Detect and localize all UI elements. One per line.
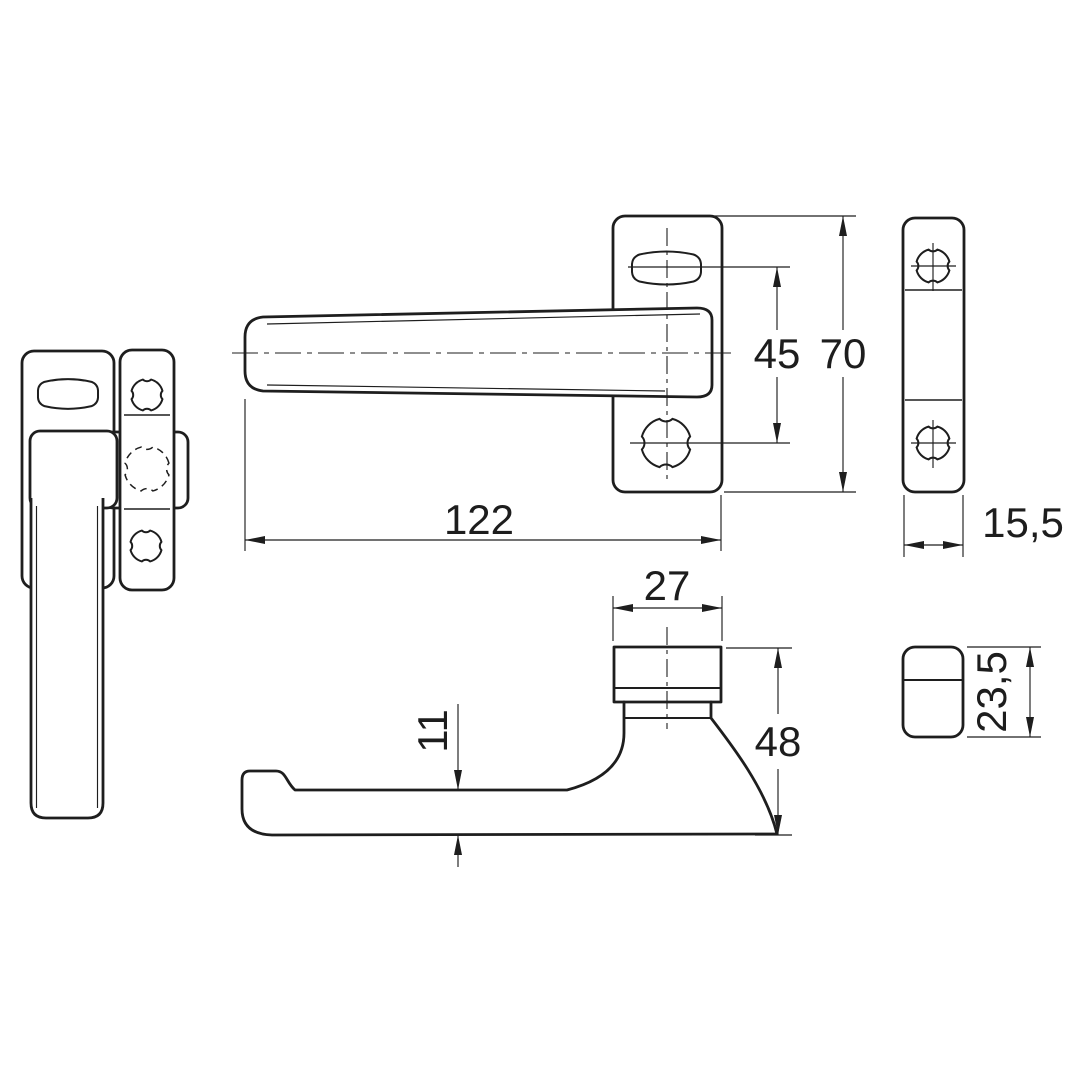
handle-grip-profile bbox=[242, 702, 777, 835]
dimension-label-hub-width: 27 bbox=[644, 562, 691, 609]
hub-top-body bbox=[903, 647, 963, 737]
front-handle-grip bbox=[31, 498, 103, 818]
window-handle-drawing: 122 45 70 15,5 bbox=[0, 0, 1080, 1080]
view-top bbox=[232, 216, 790, 492]
view-front bbox=[22, 350, 188, 818]
dimension-label-hub-depth: 23,5 bbox=[968, 651, 1015, 733]
dimension-label-handle-projection: 48 bbox=[755, 718, 802, 765]
dimension-label-lever-length: 122 bbox=[444, 496, 514, 543]
dimension-label-plate-height: 70 bbox=[820, 330, 867, 377]
dimension-label-plate-width: 15,5 bbox=[982, 499, 1064, 546]
dimension-label-hole-spacing: 45 bbox=[754, 330, 801, 377]
view-handle-side bbox=[242, 627, 777, 835]
front-rosette-plate bbox=[120, 350, 174, 590]
front-handle-base bbox=[30, 431, 117, 508]
dimension-23-5: 23,5 bbox=[967, 647, 1041, 737]
technical-drawing-canvas: 122 45 70 15,5 bbox=[0, 0, 1080, 1080]
dimension-15-5: 15,5 bbox=[904, 495, 1064, 557]
view-hub-top bbox=[903, 647, 963, 737]
dimension-11: 11 bbox=[409, 704, 458, 867]
dimension-label-grip-thickness: 11 bbox=[409, 709, 456, 753]
dimension-48: 48 bbox=[726, 648, 801, 835]
view-plate-side bbox=[903, 218, 964, 492]
dimension-45: 45 bbox=[754, 267, 801, 443]
